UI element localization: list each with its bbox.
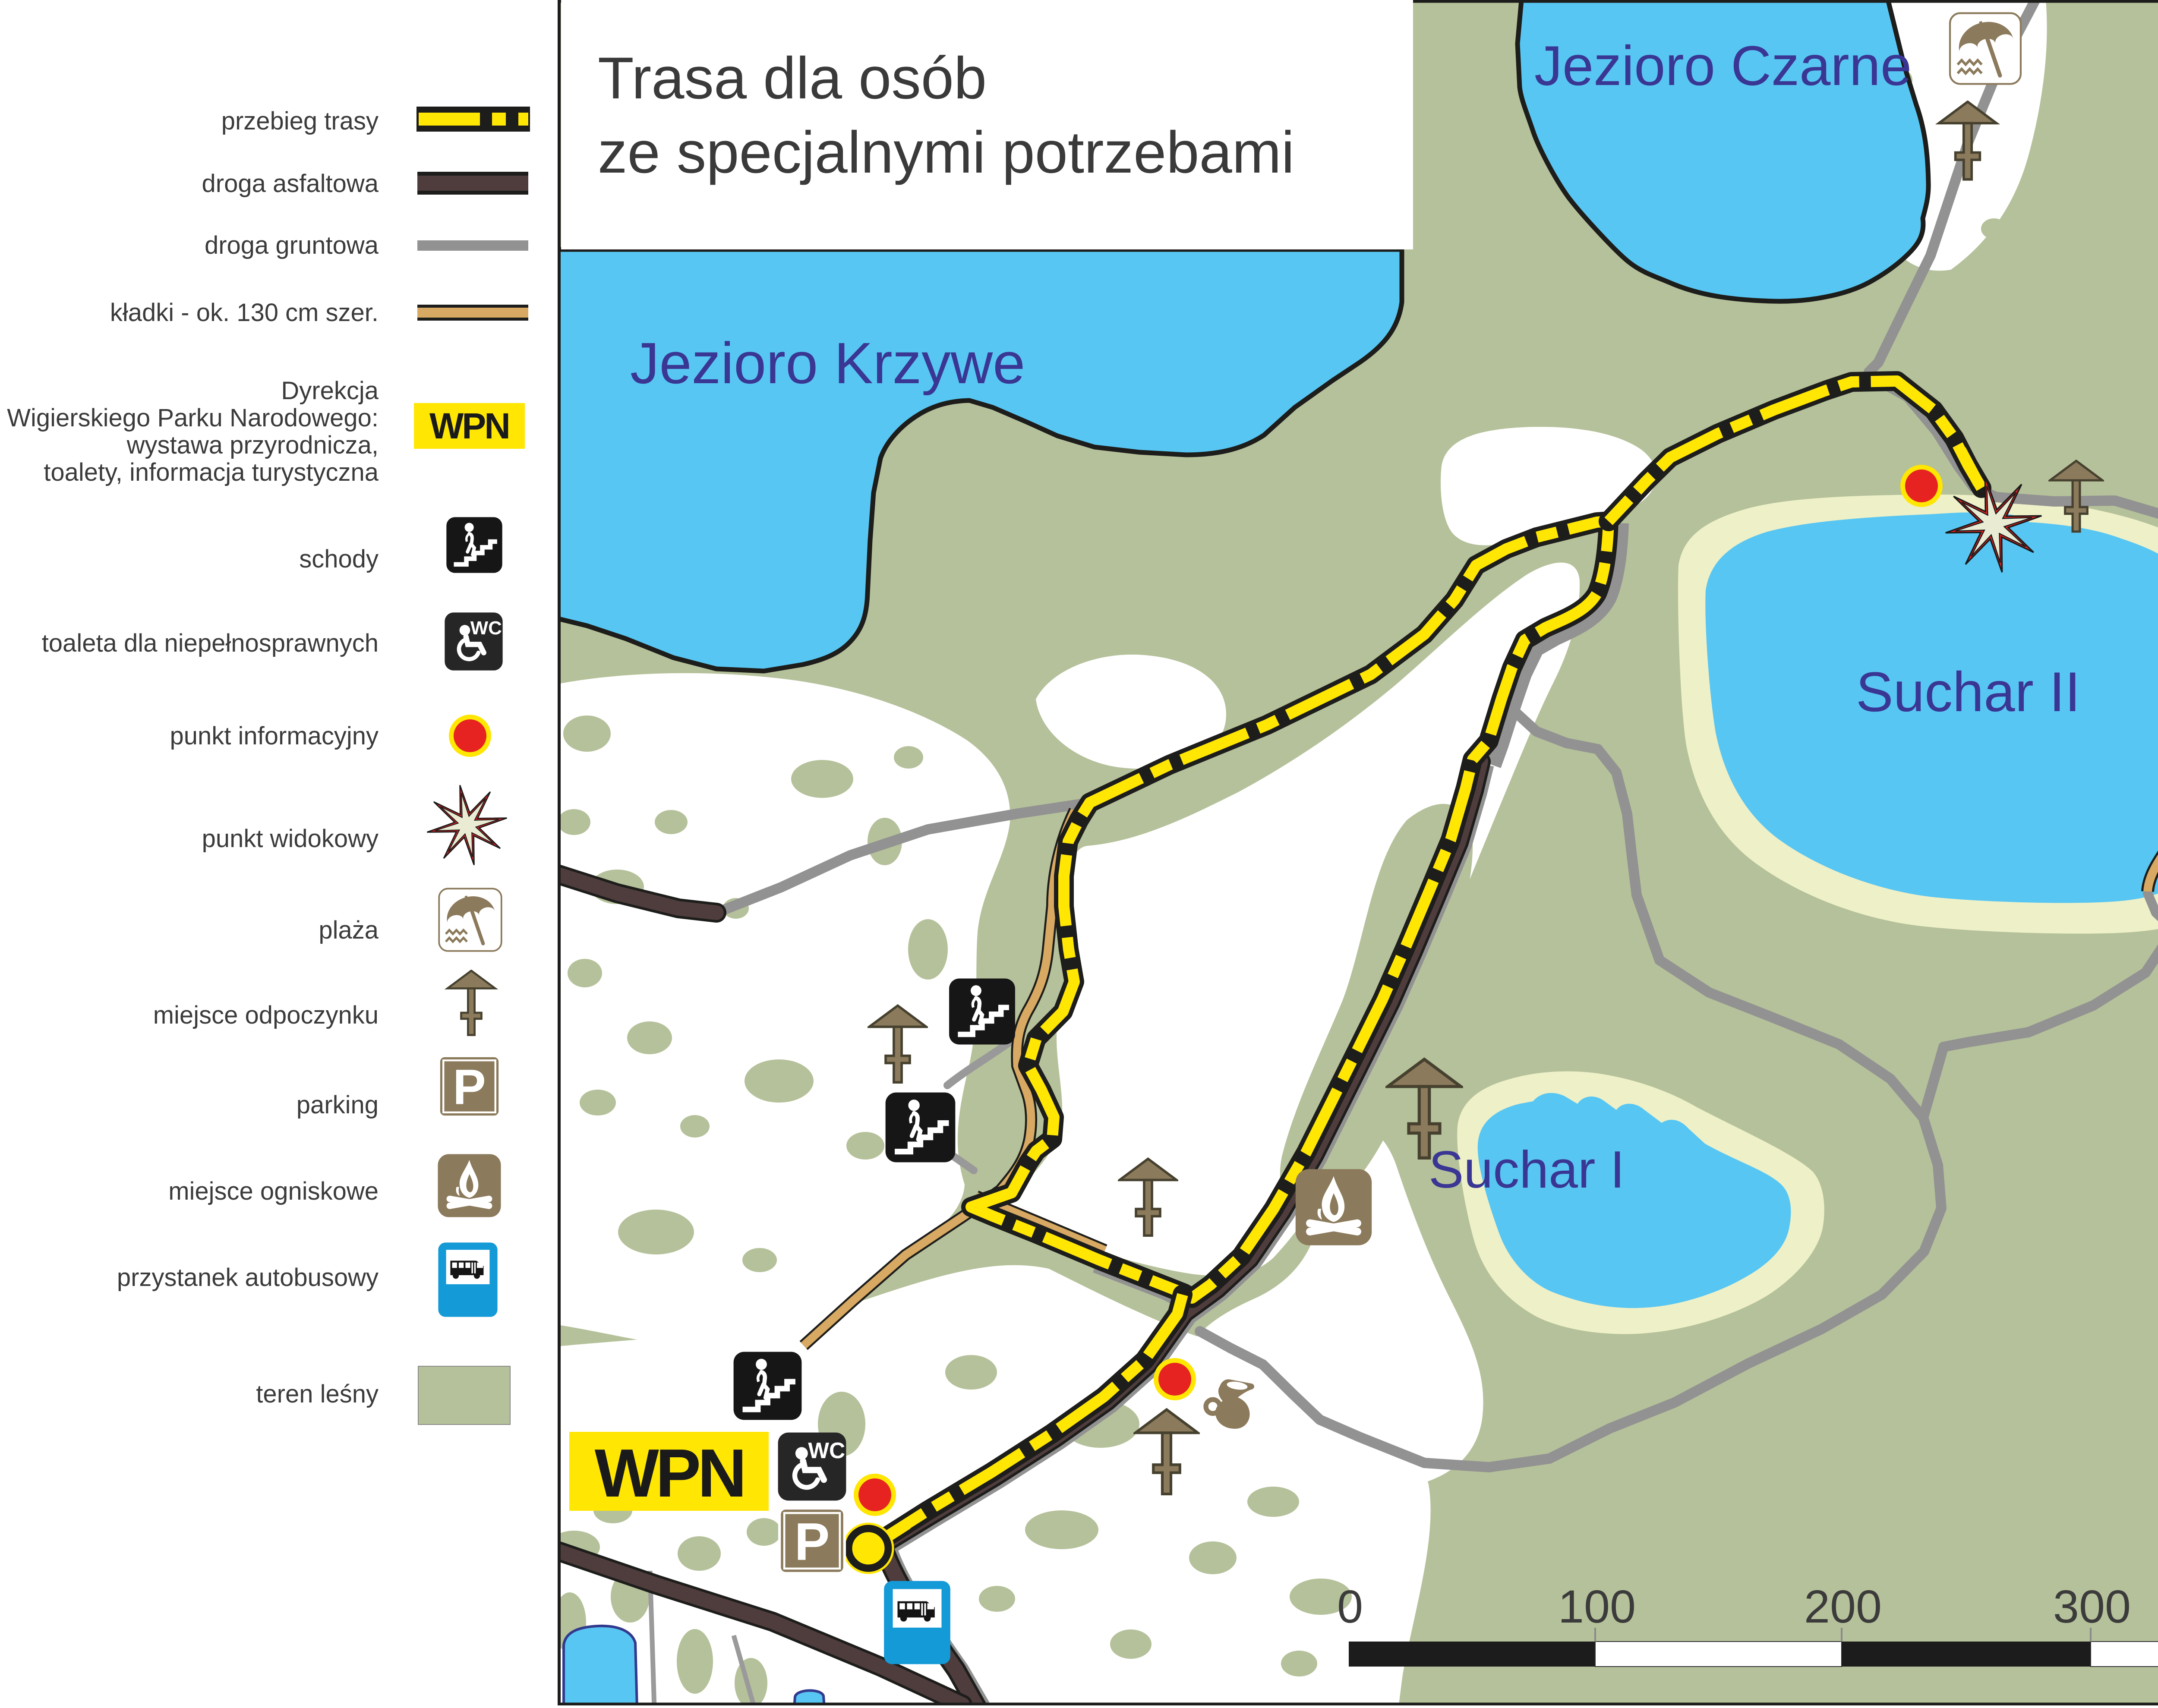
svg-text:toalety, informacja turystyczn: toalety, informacja turystyczna <box>44 458 379 486</box>
svg-text:0: 0 <box>1337 1580 1363 1632</box>
svg-text:teren leśny: teren leśny <box>256 1380 379 1408</box>
svg-text:schody: schody <box>299 545 379 573</box>
svg-text:Jezioro Krzywe: Jezioro Krzywe <box>630 331 1025 396</box>
svg-text:Wigierskiego Parku Narodowego:: Wigierskiego Parku Narodowego: <box>7 404 379 432</box>
svg-text:przystanek autobusowy: przystanek autobusowy <box>117 1264 379 1292</box>
svg-text:WPN: WPN <box>595 1435 744 1511</box>
svg-text:300: 300 <box>2053 1580 2131 1632</box>
svg-text:Dyrekcja: Dyrekcja <box>281 377 379 405</box>
svg-text:droga gruntowa: droga gruntowa <box>205 231 379 259</box>
svg-text:punkt informacyjny: punkt informacyjny <box>170 722 379 750</box>
svg-text:Trasa dla osób: Trasa dla osób <box>598 45 987 111</box>
svg-text:100: 100 <box>1558 1580 1636 1632</box>
svg-text:miejsce odpoczynku: miejsce odpoczynku <box>153 1001 379 1029</box>
svg-text:kładki - ok. 130 cm szer.: kładki - ok. 130 cm szer. <box>110 299 379 327</box>
svg-text:droga asfaltowa: droga asfaltowa <box>202 170 379 198</box>
svg-text:ze specjalnymi potrzebami: ze specjalnymi potrzebami <box>598 120 1294 186</box>
svg-text:miejsce ogniskowe: miejsce ogniskowe <box>168 1177 379 1205</box>
svg-text:Suchar II: Suchar II <box>1856 660 2080 723</box>
svg-text:wystawa przyrodnicza,: wystawa przyrodnicza, <box>126 431 379 459</box>
svg-text:200: 200 <box>1804 1580 1882 1632</box>
svg-text:WPN: WPN <box>429 406 509 446</box>
svg-text:Suchar I: Suchar I <box>1429 1140 1625 1199</box>
svg-text:plaża: plaża <box>319 916 379 944</box>
svg-text:punkt widokowy: punkt widokowy <box>202 825 379 853</box>
svg-text:Jezioro Czarne: Jezioro Czarne <box>1534 34 1912 97</box>
svg-text:toaleta dla niepełnosprawnych: toaleta dla niepełnosprawnych <box>42 629 379 657</box>
svg-text:przebieg trasy: przebieg trasy <box>221 107 379 135</box>
svg-text:parking: parking <box>297 1091 379 1119</box>
